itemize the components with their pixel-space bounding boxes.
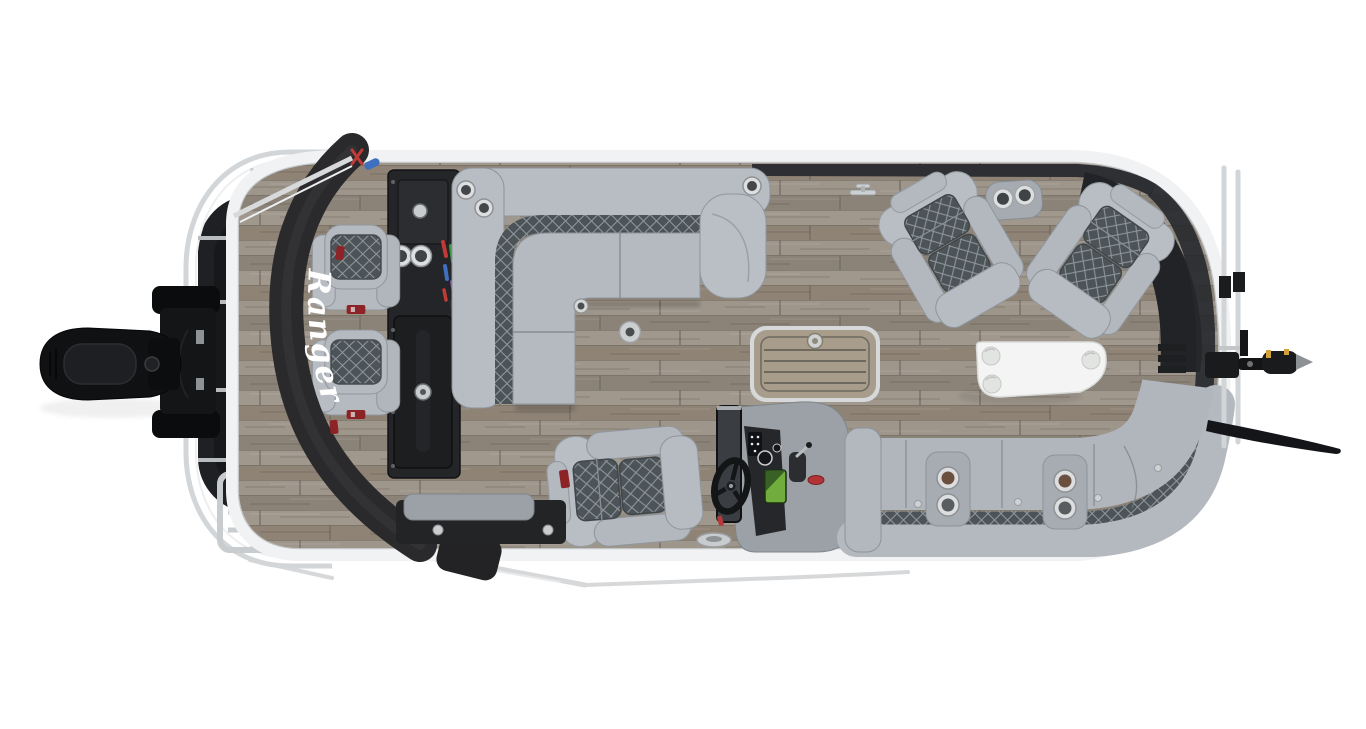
- armrest-console-2: [1043, 455, 1087, 529]
- armrest-console-1: [926, 452, 970, 526]
- outboard-motor: [40, 328, 181, 400]
- boat-photo-stage: Ranger: [0, 0, 1366, 729]
- lounge-end-cushion: [845, 428, 881, 552]
- pontoon-boat-overhead: Ranger: [0, 0, 1366, 729]
- deck-plate-center: [626, 328, 635, 337]
- gauge: [758, 451, 772, 465]
- hatch-latch: [413, 204, 427, 218]
- stern-step-bench: [396, 494, 566, 544]
- lounge-arm-end: [700, 194, 766, 298]
- gear-console: [388, 170, 460, 478]
- brand-emblem: [808, 476, 824, 485]
- bow-bracket: [1158, 344, 1186, 373]
- stern-cleat-pylon: [697, 533, 731, 547]
- ski-locker-hatch-mat: [750, 326, 880, 402]
